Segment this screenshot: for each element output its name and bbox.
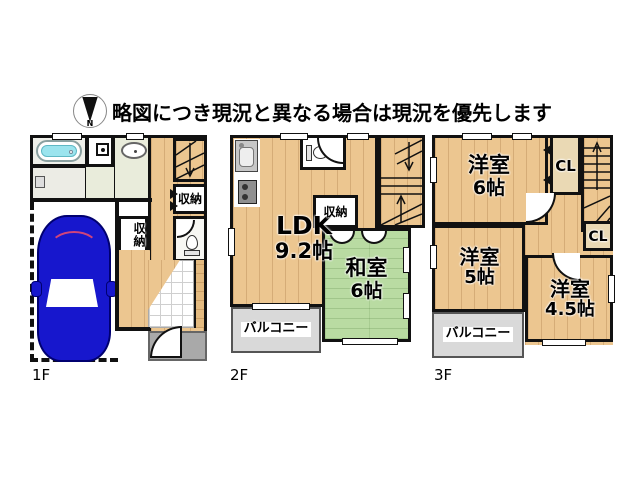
room-size: 5帖	[437, 268, 522, 288]
washitsu-size: 6帖	[327, 281, 406, 302]
toilet-icon	[184, 250, 200, 256]
laundry-nook	[86, 135, 114, 167]
closet-3f-bottom: CL	[583, 221, 613, 251]
window	[126, 133, 144, 140]
bifold-door-icon	[543, 175, 551, 185]
bifold-door-icon	[543, 145, 551, 155]
staircase-icon	[584, 138, 610, 229]
compass: N	[73, 94, 107, 128]
washitsu-name: 和室	[327, 257, 406, 281]
balcony-2f: バルコニー	[231, 307, 321, 353]
faucet-icon	[239, 143, 244, 148]
washroom	[30, 165, 88, 202]
shoe-cabinet	[194, 260, 207, 328]
staircase-3f	[581, 135, 613, 232]
hall-extension	[118, 250, 150, 331]
kitchen-sink	[235, 140, 258, 172]
toilet-bowl-icon	[186, 235, 198, 250]
balcony-label: バルコニー	[241, 322, 312, 337]
wall	[30, 198, 152, 202]
window	[280, 133, 308, 140]
toilet-room-2f	[300, 135, 346, 170]
closet-label: 収納	[316, 206, 355, 219]
floor-label-2f: 2F	[230, 366, 248, 384]
bedroom-5: 洋室 5帖	[432, 225, 525, 312]
closet-label: CL	[586, 230, 610, 246]
toilet-room-1f	[173, 216, 207, 262]
floor-2f: LDK 9.2帖	[230, 135, 425, 357]
toilet-icon	[306, 145, 312, 161]
floor-label-1f: 1F	[32, 366, 50, 384]
window	[342, 338, 398, 345]
floor-label-3f: 3F	[434, 366, 452, 384]
balcony-3f: バルコニー	[432, 312, 524, 358]
bathtub	[36, 140, 82, 162]
window	[430, 157, 437, 183]
window	[52, 133, 82, 140]
powder-room-ext	[86, 167, 114, 202]
room-size: 4.5帖	[530, 300, 610, 320]
closet-label: 収納	[121, 222, 145, 248]
room-size: 6帖	[439, 178, 539, 199]
closet-3f-top: CL	[550, 135, 581, 195]
balcony-label: バルコニー	[443, 327, 514, 342]
drain-icon	[69, 150, 73, 154]
closet-label: 収納	[176, 193, 204, 206]
window	[430, 245, 437, 269]
hood-line	[49, 231, 99, 265]
window	[347, 133, 369, 140]
windshield	[46, 279, 98, 307]
staircase-1f	[173, 138, 207, 182]
window	[512, 133, 532, 140]
window	[542, 339, 586, 346]
basin-icon	[121, 142, 147, 159]
stove	[238, 180, 257, 204]
wall	[116, 327, 150, 331]
compass-north-label: N	[87, 119, 94, 128]
floorplan-canvas: N 略図につき現況と異なる場合は現況を優先します	[0, 0, 640, 480]
staircase-icon	[176, 141, 204, 179]
washer-tap-icon	[35, 176, 45, 188]
floor-1f: 収納 収納	[30, 135, 207, 365]
washing-machine-icon	[96, 143, 109, 156]
car	[37, 215, 111, 362]
wall	[115, 202, 119, 331]
balcony-door	[252, 303, 310, 310]
window	[462, 133, 492, 140]
window	[228, 228, 235, 256]
staircase-2f	[378, 135, 425, 228]
room-name: 洋室	[437, 246, 522, 268]
room-name: 洋室	[530, 278, 610, 300]
side-mirror	[31, 281, 42, 297]
closet-1f-hall: 収納	[173, 184, 207, 214]
floor-3f: 洋室 6帖 CL 洋室 5帖 CL	[432, 135, 613, 362]
room-name: 洋室	[439, 154, 539, 178]
powder-room	[112, 135, 152, 202]
staircase-icon	[381, 138, 422, 225]
disclaimer-text: 略図につき現況と異なる場合は現況を優先します	[112, 97, 552, 126]
closet-label: CL	[553, 158, 578, 175]
